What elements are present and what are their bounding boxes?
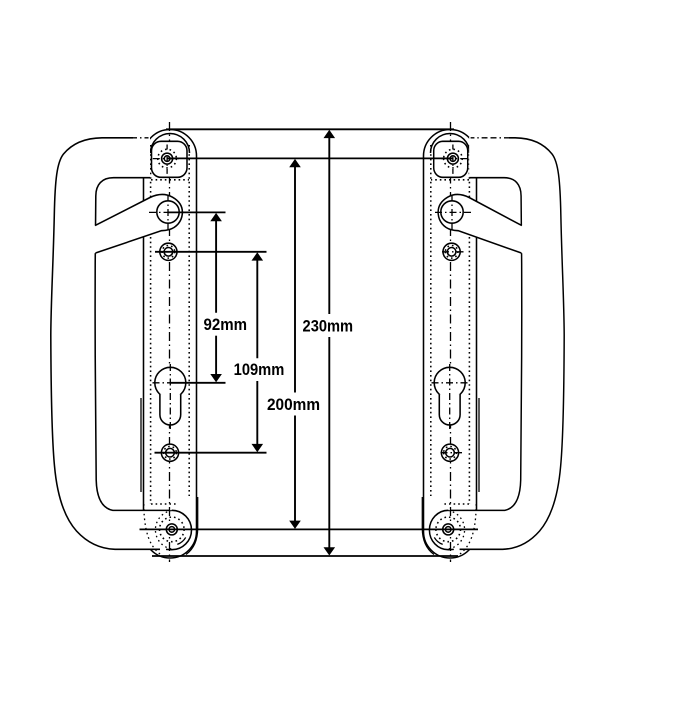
svg-text:109mm: 109mm xyxy=(234,360,285,379)
svg-text:92mm: 92mm xyxy=(204,315,248,334)
svg-text:230mm: 230mm xyxy=(303,317,354,336)
svg-text:200mm: 200mm xyxy=(267,395,320,414)
